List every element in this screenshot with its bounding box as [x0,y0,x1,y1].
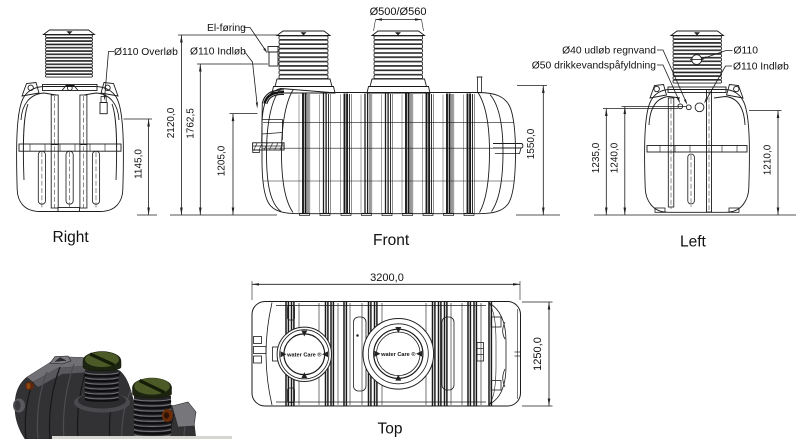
svg-text:1235,0: 1235,0 [591,142,602,173]
svg-text:Ø500/Ø560: Ø500/Ø560 [370,6,427,18]
svg-text:Left: Left [680,234,707,251]
svg-text:Ø110: Ø110 [734,46,759,57]
svg-text:El-føring: El-føring [207,23,246,34]
svg-text:1250,0: 1250,0 [532,337,544,371]
svg-text:2120,0: 2120,0 [166,107,177,138]
svg-text:Right: Right [53,229,90,246]
svg-text:water Care ®: water Care ® [286,352,322,359]
svg-text:1550,0: 1550,0 [526,128,537,159]
svg-text:Ø40 udløb regnvand: Ø40 udløb regnvand [562,46,656,57]
svg-text:Ø50 drikkevandspåfyldning: Ø50 drikkevandspåfyldning [532,60,656,72]
svg-text:1145,0: 1145,0 [134,149,145,179]
svg-text:3200,0: 3200,0 [370,272,404,284]
svg-text:1762,5: 1762,5 [185,108,196,139]
svg-text:1210,0: 1210,0 [763,144,774,175]
svg-text:Top: Top [378,420,403,437]
svg-text:1205,0: 1205,0 [217,145,228,176]
svg-text:1240,0: 1240,0 [609,142,620,173]
svg-text:Ø110 Indløb: Ø110 Indløb [733,62,789,73]
svg-text:Ø110 Overløb: Ø110 Overløb [114,47,178,58]
svg-text:water Care ®: water Care ® [380,351,416,358]
svg-text:Ø110 Indløb: Ø110 Indløb [190,47,246,58]
svg-text:Front: Front [373,232,410,249]
